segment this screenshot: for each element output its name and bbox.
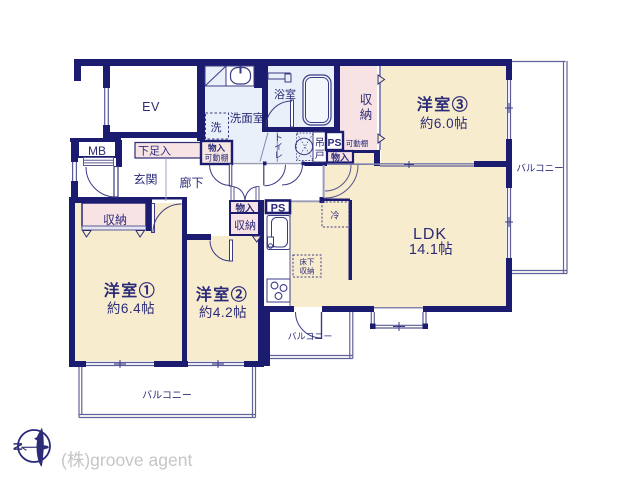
svg-text:洋室②: 洋室②: [196, 285, 249, 304]
svg-text:納: 納: [360, 108, 373, 122]
svg-text:LDK: LDK: [413, 226, 447, 243]
svg-text:物入: 物入: [331, 152, 349, 163]
svg-text:バルコニー: バルコニー: [288, 332, 333, 342]
svg-text:吊: 吊: [315, 137, 325, 149]
svg-text:N: N: [13, 442, 25, 450]
svg-text:可動棚: 可動棚: [205, 153, 229, 163]
svg-text:MB: MB: [88, 144, 106, 158]
svg-text:玄関: 玄関: [133, 172, 157, 187]
svg-text:約6.0帖: 約6.0帖: [420, 116, 468, 131]
svg-text:洗: 洗: [211, 121, 222, 134]
svg-text:約6.4帖: 約6.4帖: [107, 301, 155, 316]
svg-text:物入: 物入: [208, 143, 226, 153]
svg-text:洋室③: 洋室③: [417, 95, 470, 114]
svg-text:戸: 戸: [315, 149, 325, 161]
svg-text:収納: 収納: [103, 213, 127, 227]
svg-text:レ: レ: [274, 150, 283, 160]
svg-text:14.1帖: 14.1帖: [409, 241, 453, 258]
svg-text:床下: 床下: [300, 257, 315, 267]
svg-text:下足入: 下足入: [138, 146, 171, 158]
svg-text:洋室①: 洋室①: [104, 281, 157, 300]
svg-text:収納: 収納: [234, 219, 256, 232]
svg-text:冷: 冷: [330, 210, 339, 221]
svg-text:可動棚: 可動棚: [346, 138, 369, 148]
svg-text:収: 収: [360, 93, 373, 107]
svg-text:廊下: 廊下: [179, 175, 203, 190]
svg-text:EV: EV: [142, 100, 160, 114]
svg-text:収納: 収納: [300, 266, 315, 276]
svg-text:浴室: 浴室: [274, 87, 296, 101]
svg-text:約4.2帖: 約4.2帖: [199, 305, 247, 320]
svg-text:PS: PS: [327, 137, 341, 149]
svg-text:(株)groove agent: (株)groove agent: [61, 450, 192, 470]
svg-text:PS: PS: [271, 203, 286, 215]
svg-text:洗面室: 洗面室: [230, 111, 265, 125]
svg-text:バルコニー: バルコニー: [142, 390, 192, 402]
svg-text:バルコニー: バルコニー: [516, 164, 563, 175]
